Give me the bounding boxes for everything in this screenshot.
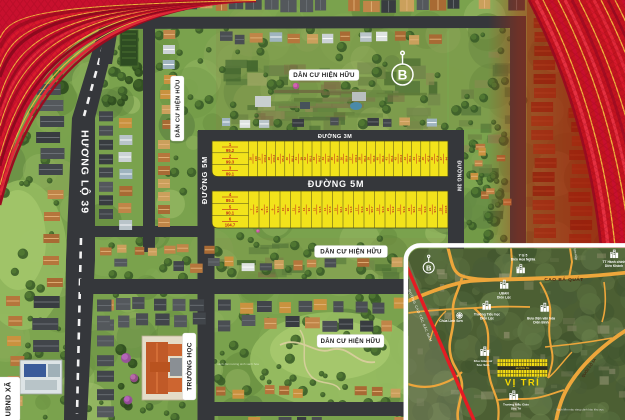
- svg-text:DÂN CƯ HIỆN HỮU: DÂN CƯ HIỆN HỮU: [321, 337, 381, 345]
- svg-text:8: 8: [260, 208, 264, 210]
- svg-text:38: 38: [358, 157, 362, 161]
- svg-text:31: 31: [294, 157, 298, 161]
- svg-text:VỊ TRÍ: VỊ TRÍ: [505, 378, 540, 389]
- svg-text:90.1: 90.1: [226, 210, 235, 215]
- svg-text:104.7: 104.7: [225, 223, 236, 228]
- svg-text:37: 37: [348, 157, 352, 161]
- svg-text:ĐƯỜNG 5M: ĐƯỜNG 5M: [516, 367, 529, 370]
- svg-text:47: 47: [439, 157, 443, 161]
- svg-text:15: 15: [333, 208, 337, 212]
- svg-text:32: 32: [303, 157, 307, 161]
- svg-text:22: 22: [407, 208, 411, 212]
- svg-text:ĐƯỜNG 5M: ĐƯỜNG 5M: [308, 178, 365, 189]
- svg-text:41: 41: [385, 157, 389, 161]
- svg-text:91.3: 91.3: [276, 206, 280, 212]
- svg-text:Sóc Trí: Sóc Trí: [511, 407, 521, 411]
- svg-text:ĐƯỜNG 3M: ĐƯỜNG 3M: [318, 132, 352, 140]
- svg-text:26: 26: [249, 157, 253, 161]
- svg-text:UBND XÃ: UBND XÃ: [4, 382, 13, 417]
- svg-text:97.4: 97.4: [433, 206, 437, 212]
- svg-text:99.3: 99.3: [226, 160, 235, 165]
- svg-text:25: 25: [438, 208, 442, 212]
- svg-text:91.3: 91.3: [402, 206, 406, 212]
- svg-text:99.2: 99.2: [226, 148, 235, 153]
- svg-text:27: 27: [258, 157, 262, 161]
- svg-text:90.7: 90.7: [370, 206, 374, 212]
- svg-text:23: 23: [417, 208, 421, 212]
- svg-text:14: 14: [323, 208, 327, 212]
- svg-text:43: 43: [403, 157, 407, 161]
- svg-text:33: 33: [312, 157, 316, 161]
- svg-text:B: B: [426, 263, 432, 272]
- svg-text:30: 30: [285, 157, 289, 161]
- svg-text:Sóc Sơn: Sóc Sơn: [477, 363, 490, 367]
- svg-text:45: 45: [421, 157, 425, 161]
- svg-text:91.3: 91.3: [297, 206, 301, 212]
- svg-text:44: 44: [412, 157, 416, 161]
- svg-text:B: B: [398, 68, 408, 83]
- svg-text:35: 35: [330, 157, 334, 161]
- svg-text:91.5: 91.5: [318, 206, 322, 212]
- svg-text:39: 39: [367, 157, 371, 161]
- svg-text:89.1: 89.1: [226, 198, 235, 203]
- svg-text:91.3: 91.3: [360, 206, 364, 212]
- svg-text:vành đai mương sinh xanh hóa: vành đai mương sinh xanh hóa: [217, 362, 259, 366]
- svg-text:18: 18: [365, 208, 369, 212]
- svg-text:20: 20: [386, 208, 390, 212]
- svg-text:Diên Lộc: Diên Lộc: [497, 296, 511, 300]
- svg-text:HƯƠNG LỘ 39: HƯƠNG LỘ 39: [79, 130, 92, 214]
- svg-text:91.3: 91.3: [265, 206, 269, 212]
- svg-text:91.3: 91.3: [381, 206, 385, 212]
- svg-text:91.3: 91.3: [423, 206, 427, 212]
- svg-text:12: 12: [302, 208, 306, 212]
- svg-text:16: 16: [344, 208, 348, 212]
- svg-text:24: 24: [428, 208, 432, 212]
- svg-text:28: 28: [267, 157, 271, 161]
- svg-text:91.2: 91.2: [391, 206, 395, 212]
- svg-text:Diên Hoà Nghĩa: Diên Hoà Nghĩa: [511, 258, 536, 262]
- svg-text:10: 10: [281, 208, 285, 212]
- svg-text:11: 11: [291, 208, 295, 212]
- svg-text:Diên Lộc: Diên Lộc: [480, 317, 494, 321]
- svg-text:Chùa Linh Sơn: Chùa Linh Sơn: [439, 319, 463, 323]
- svg-text:17: 17: [354, 208, 358, 212]
- svg-text:90: 90: [286, 208, 290, 212]
- svg-text:19: 19: [375, 208, 379, 212]
- svg-text:40: 40: [376, 157, 380, 161]
- svg-text:21: 21: [396, 208, 400, 212]
- svg-text:92.1: 92.1: [339, 206, 343, 212]
- svg-text:34: 34: [321, 157, 325, 161]
- svg-text:104.5: 104.5: [444, 205, 448, 213]
- svg-text:92.1: 92.1: [412, 206, 416, 212]
- svg-text:Diên Khánh: Diên Khánh: [605, 264, 623, 268]
- svg-text:DÂN CƯ HIỆN HỮU: DÂN CƯ HIỆN HỮU: [293, 71, 355, 79]
- svg-text:29: 29: [276, 157, 280, 161]
- svg-text:ĐƯỜNG 5M: ĐƯỜNG 5M: [200, 156, 209, 204]
- svg-text:46: 46: [430, 157, 434, 161]
- svg-text:DÂN CƯ HIỆN HỮU: DÂN CƯ HIỆN HỮU: [173, 80, 181, 138]
- svg-text:Diên Bình: Diên Bình: [533, 321, 548, 325]
- svg-text:TRƯỜNG HỌC: TRƯỜNG HỌC: [185, 342, 194, 391]
- svg-text:ĐƯỜNG 3M: ĐƯỜNG 3M: [456, 160, 464, 191]
- svg-text:7: 7: [249, 208, 253, 210]
- svg-text:91.3: 91.3: [349, 206, 353, 212]
- svg-text:44: 44: [445, 157, 449, 161]
- svg-text:Vạch liền màu vàng cảnh báo kh: Vạch liền màu vàng cảnh báo khu vực: [556, 408, 604, 412]
- svg-text:36: 36: [339, 157, 343, 161]
- svg-text:91.4: 91.4: [255, 206, 259, 212]
- svg-text:97.3: 97.3: [328, 206, 332, 212]
- svg-text:42: 42: [394, 157, 398, 161]
- svg-text:CAO BÁ QUÁT: CAO BÁ QUÁT: [544, 276, 583, 283]
- svg-text:91: 91: [307, 208, 311, 212]
- svg-text:DÂN CƯ HIỆN HỮU: DÂN CƯ HIỆN HỮU: [320, 248, 382, 256]
- svg-text:13: 13: [312, 208, 316, 212]
- svg-text:89.1: 89.1: [226, 172, 235, 177]
- svg-text:9: 9: [270, 208, 274, 210]
